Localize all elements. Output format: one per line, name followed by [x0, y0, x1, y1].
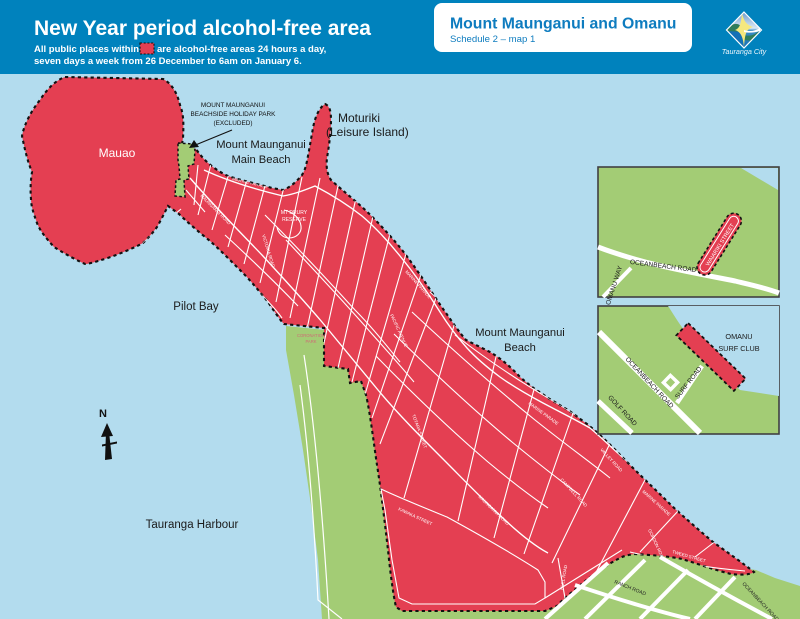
svg-text:Mauao: Mauao [99, 146, 136, 160]
svg-text:New Year period alcohol-free a: New Year period alcohol-free area [34, 17, 371, 40]
svg-text:Mount Maunganui: Mount Maunganui [475, 327, 565, 339]
svg-text:are alcohol-free areas 24 hour: are alcohol-free areas 24 hours a day, [157, 44, 326, 55]
svg-text:Mount Maunganui and Omanu: Mount Maunganui and Omanu [450, 16, 676, 33]
svg-text:Pilot Bay: Pilot Bay [173, 301, 219, 313]
svg-text:Mount Maunganui: Mount Maunganui [216, 139, 306, 151]
svg-text:All public places within: All public places within [34, 44, 139, 55]
svg-text:OMANU: OMANU [725, 332, 752, 341]
svg-text:MT DRURY: MT DRURY [281, 210, 308, 216]
svg-text:PARK: PARK [305, 339, 316, 344]
svg-text:Schedule 2 – map 1: Schedule 2 – map 1 [450, 34, 535, 45]
svg-text:SURF CLUB: SURF CLUB [718, 344, 759, 353]
svg-text:Tauranga City: Tauranga City [722, 47, 767, 56]
svg-text:(Leisure Island): (Leisure Island) [326, 125, 409, 139]
svg-text:Beach: Beach [504, 342, 536, 354]
svg-text:Tauranga Harbour: Tauranga Harbour [146, 519, 239, 531]
svg-text:seven days a week from 26 Dece: seven days a week from 26 December to 6a… [34, 56, 302, 67]
svg-text:MOUNT MAUNGANUI: MOUNT MAUNGANUI [201, 102, 265, 109]
svg-text:N: N [99, 408, 107, 420]
svg-text:RESERVE: RESERVE [282, 217, 306, 223]
svg-text:Main Beach: Main Beach [231, 154, 290, 166]
svg-text:(EXCLUDED): (EXCLUDED) [213, 120, 252, 127]
svg-text:CORONATION: CORONATION [297, 333, 325, 338]
svg-text:BEACHSIDE HOLIDAY PARK: BEACHSIDE HOLIDAY PARK [191, 111, 277, 118]
svg-text:Moturiki: Moturiki [338, 111, 380, 125]
